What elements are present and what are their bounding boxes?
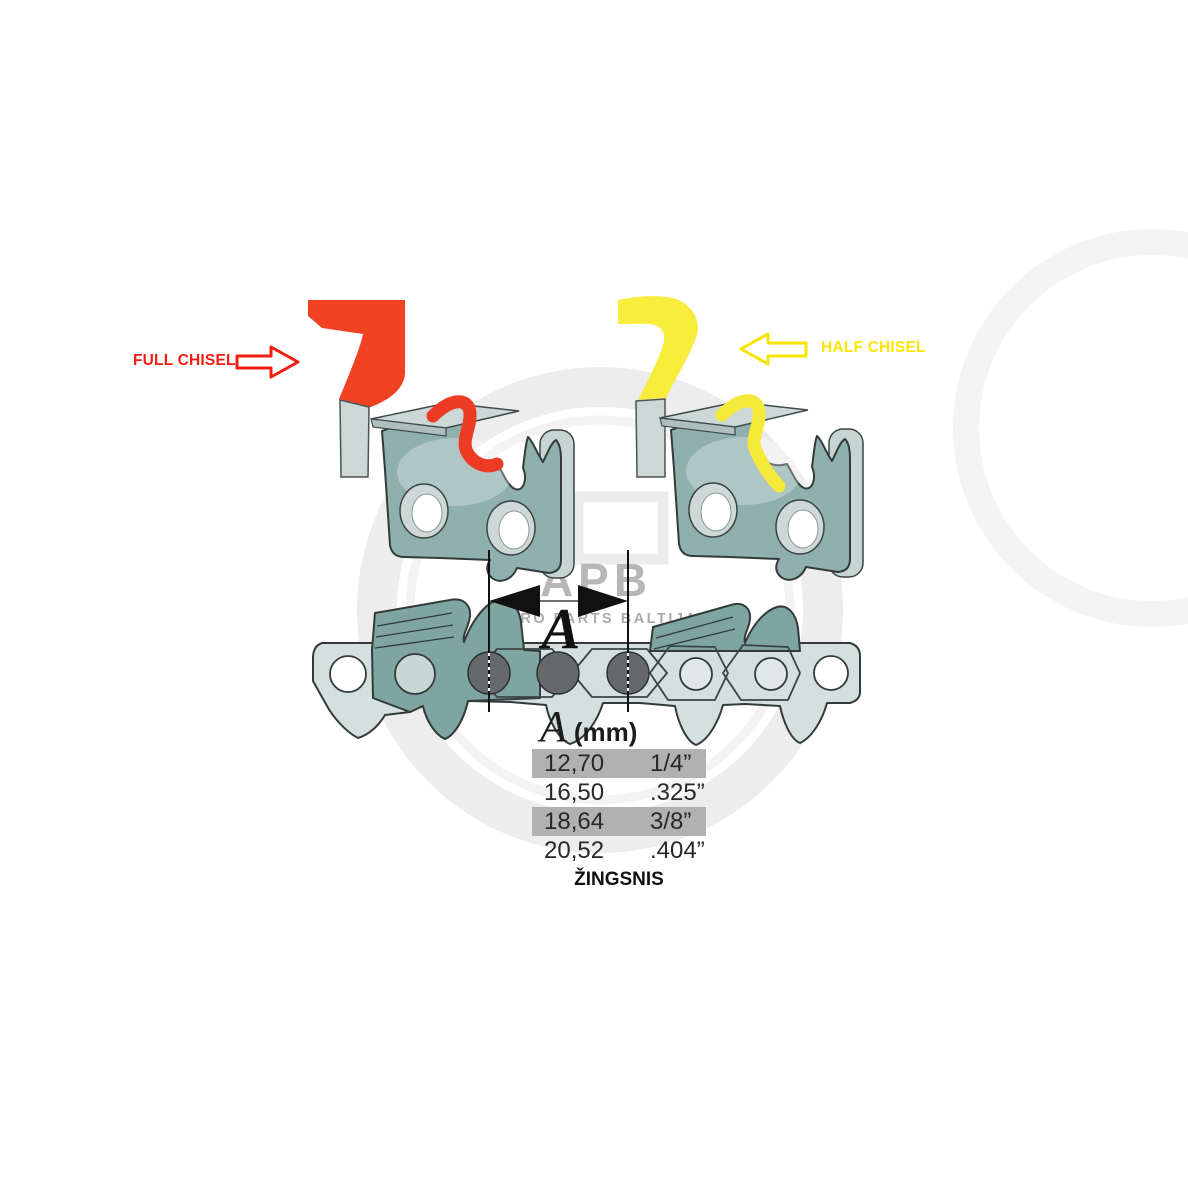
diagram-artwork: APB AGRO PARTS BALTIJA — [0, 0, 1188, 1188]
full-chisel-arrow-icon — [237, 347, 298, 377]
dimension-letter: A — [539, 596, 581, 661]
pitch-table-header: A (mm) — [532, 705, 706, 749]
full-chisel-stem — [340, 400, 369, 477]
half-chisel-arrow-icon — [741, 334, 806, 364]
chain-hole — [814, 656, 848, 690]
pitch-table-header-letter: A — [540, 705, 567, 749]
pitch-inch-value: 3/8” — [636, 807, 691, 836]
full-chisel-hook-icon — [308, 300, 405, 407]
pitch-mm-value: 16,50 — [532, 778, 636, 807]
chain-hole — [755, 658, 787, 690]
chainsaw-pitch-diagram: APB AGRO PARTS BALTIJA — [0, 0, 1188, 1188]
half-chisel-label: HALF CHISEL — [821, 339, 926, 357]
pitch-table: A (mm) 12,70 1/4” 16,50 .325” 18,64 3/8”… — [532, 705, 706, 891]
table-row: 18,64 3/8” — [532, 807, 706, 836]
half-chisel-stem — [636, 399, 665, 477]
chain-hole — [330, 656, 366, 692]
watermark-corner-ring-icon — [966, 242, 1188, 614]
full-chisel-label: FULL CHISEL — [133, 352, 236, 370]
pitch-caption: ŽINGSNIS — [532, 869, 706, 891]
chain-hole — [395, 654, 435, 694]
pitch-inch-value: .325” — [636, 778, 705, 807]
table-row: 16,50 .325” — [532, 778, 706, 807]
pitch-inch-value: .404” — [636, 836, 705, 865]
half-chisel-cutter-link — [660, 400, 863, 580]
pitch-inch-value: 1/4” — [636, 749, 691, 778]
pitch-mm-value: 20,52 — [532, 836, 636, 865]
chain-hole — [680, 658, 712, 690]
pitch-mm-value: 12,70 — [532, 749, 636, 778]
watermark-square-icon — [578, 497, 663, 559]
table-row: 20,52 .404” — [532, 836, 706, 865]
pitch-mm-value: 18,64 — [532, 807, 636, 836]
pitch-table-header-unit: (mm) — [574, 717, 638, 748]
table-row: 12,70 1/4” — [532, 749, 706, 778]
